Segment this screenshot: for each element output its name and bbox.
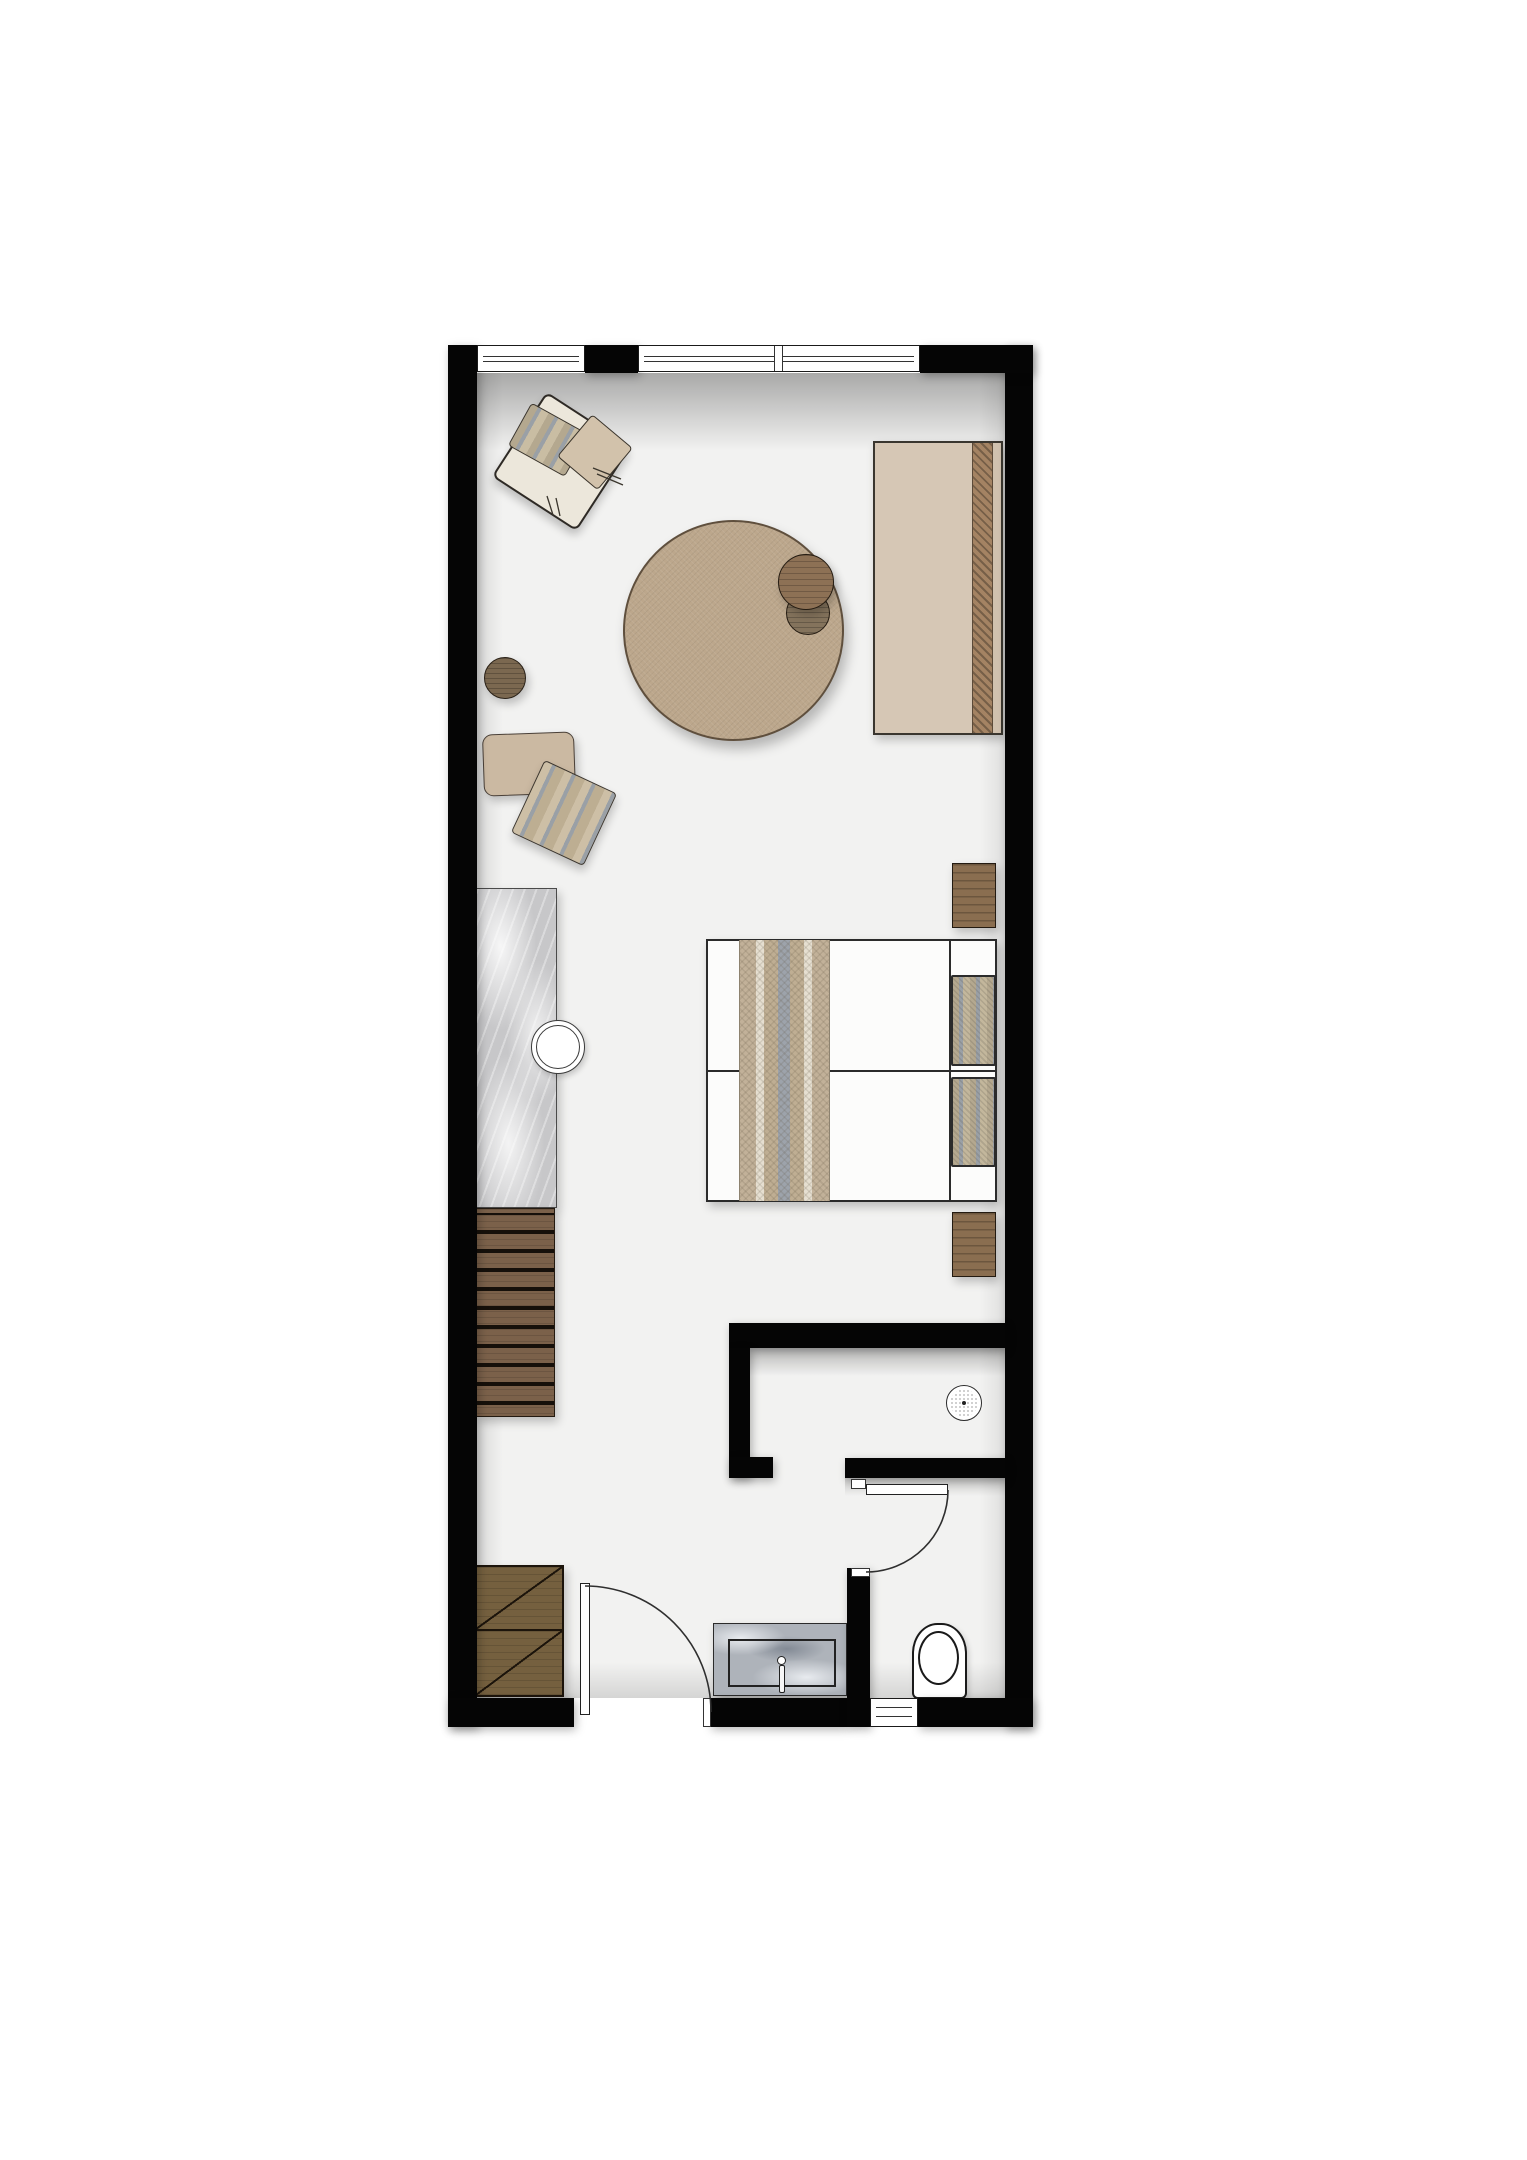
entry-door-leaf: [580, 1583, 590, 1715]
wall-bath-top: [729, 1323, 1005, 1348]
wall-wc-partition: [847, 1568, 870, 1727]
window-top-right: [638, 345, 920, 372]
stool: [484, 657, 526, 699]
glazing-line: [876, 1716, 912, 1717]
nightstand-lower: [952, 1212, 996, 1277]
floor-plan-canvas: [0, 0, 1527, 2160]
bed-striped-throw: [739, 940, 830, 1201]
wall-bath-foot: [729, 1457, 773, 1478]
wardrobe-cell-bottom: [476, 1631, 562, 1695]
bathroom-door-jamb-bottom: [851, 1568, 870, 1577]
bathroom-door-leaf: [866, 1484, 948, 1495]
daybed: [873, 441, 1003, 735]
glazing-line: [483, 356, 579, 357]
slatted-bench: [476, 1208, 555, 1417]
nightstand-upper: [952, 863, 996, 928]
wall-bottom-right: [918, 1698, 1033, 1727]
toilet: [912, 1623, 967, 1699]
wall-bath-inner: [845, 1458, 1005, 1478]
vanity: [713, 1623, 847, 1696]
twin-beds: [706, 939, 997, 1202]
bath-wall-shadow: [750, 1348, 1005, 1376]
wall-bottom-left: [448, 1698, 574, 1727]
toilet-bowl: [918, 1631, 959, 1685]
wall-left: [448, 345, 477, 1727]
shower-center-dot: [962, 1401, 966, 1405]
entry-door-jamb: [703, 1698, 711, 1727]
wall-top-right: [920, 345, 1033, 373]
wall-right: [1005, 345, 1033, 1727]
side-table-large: [778, 554, 834, 610]
wardrobe-cell-top: [476, 1567, 562, 1631]
window-top-left: [477, 345, 585, 372]
sink: [531, 1020, 585, 1074]
wall-bottom-center: [710, 1698, 847, 1727]
bed-pillow-lower: [951, 1077, 996, 1167]
wall-top-pier: [585, 345, 638, 373]
daybed-runner: [972, 443, 993, 733]
glazing-line: [876, 1707, 912, 1708]
faucet-stem: [779, 1665, 785, 1693]
glazing-line: [483, 361, 579, 362]
window-mullion: [774, 346, 783, 371]
shower-head: [946, 1385, 982, 1421]
bed-pillow-upper: [951, 975, 996, 1066]
faucet-icon: [777, 1656, 786, 1665]
sink-basin: [536, 1025, 580, 1069]
wardrobe: [474, 1565, 564, 1697]
bathroom-door-jamb-top: [851, 1479, 866, 1489]
window-bottom: [870, 1698, 918, 1727]
